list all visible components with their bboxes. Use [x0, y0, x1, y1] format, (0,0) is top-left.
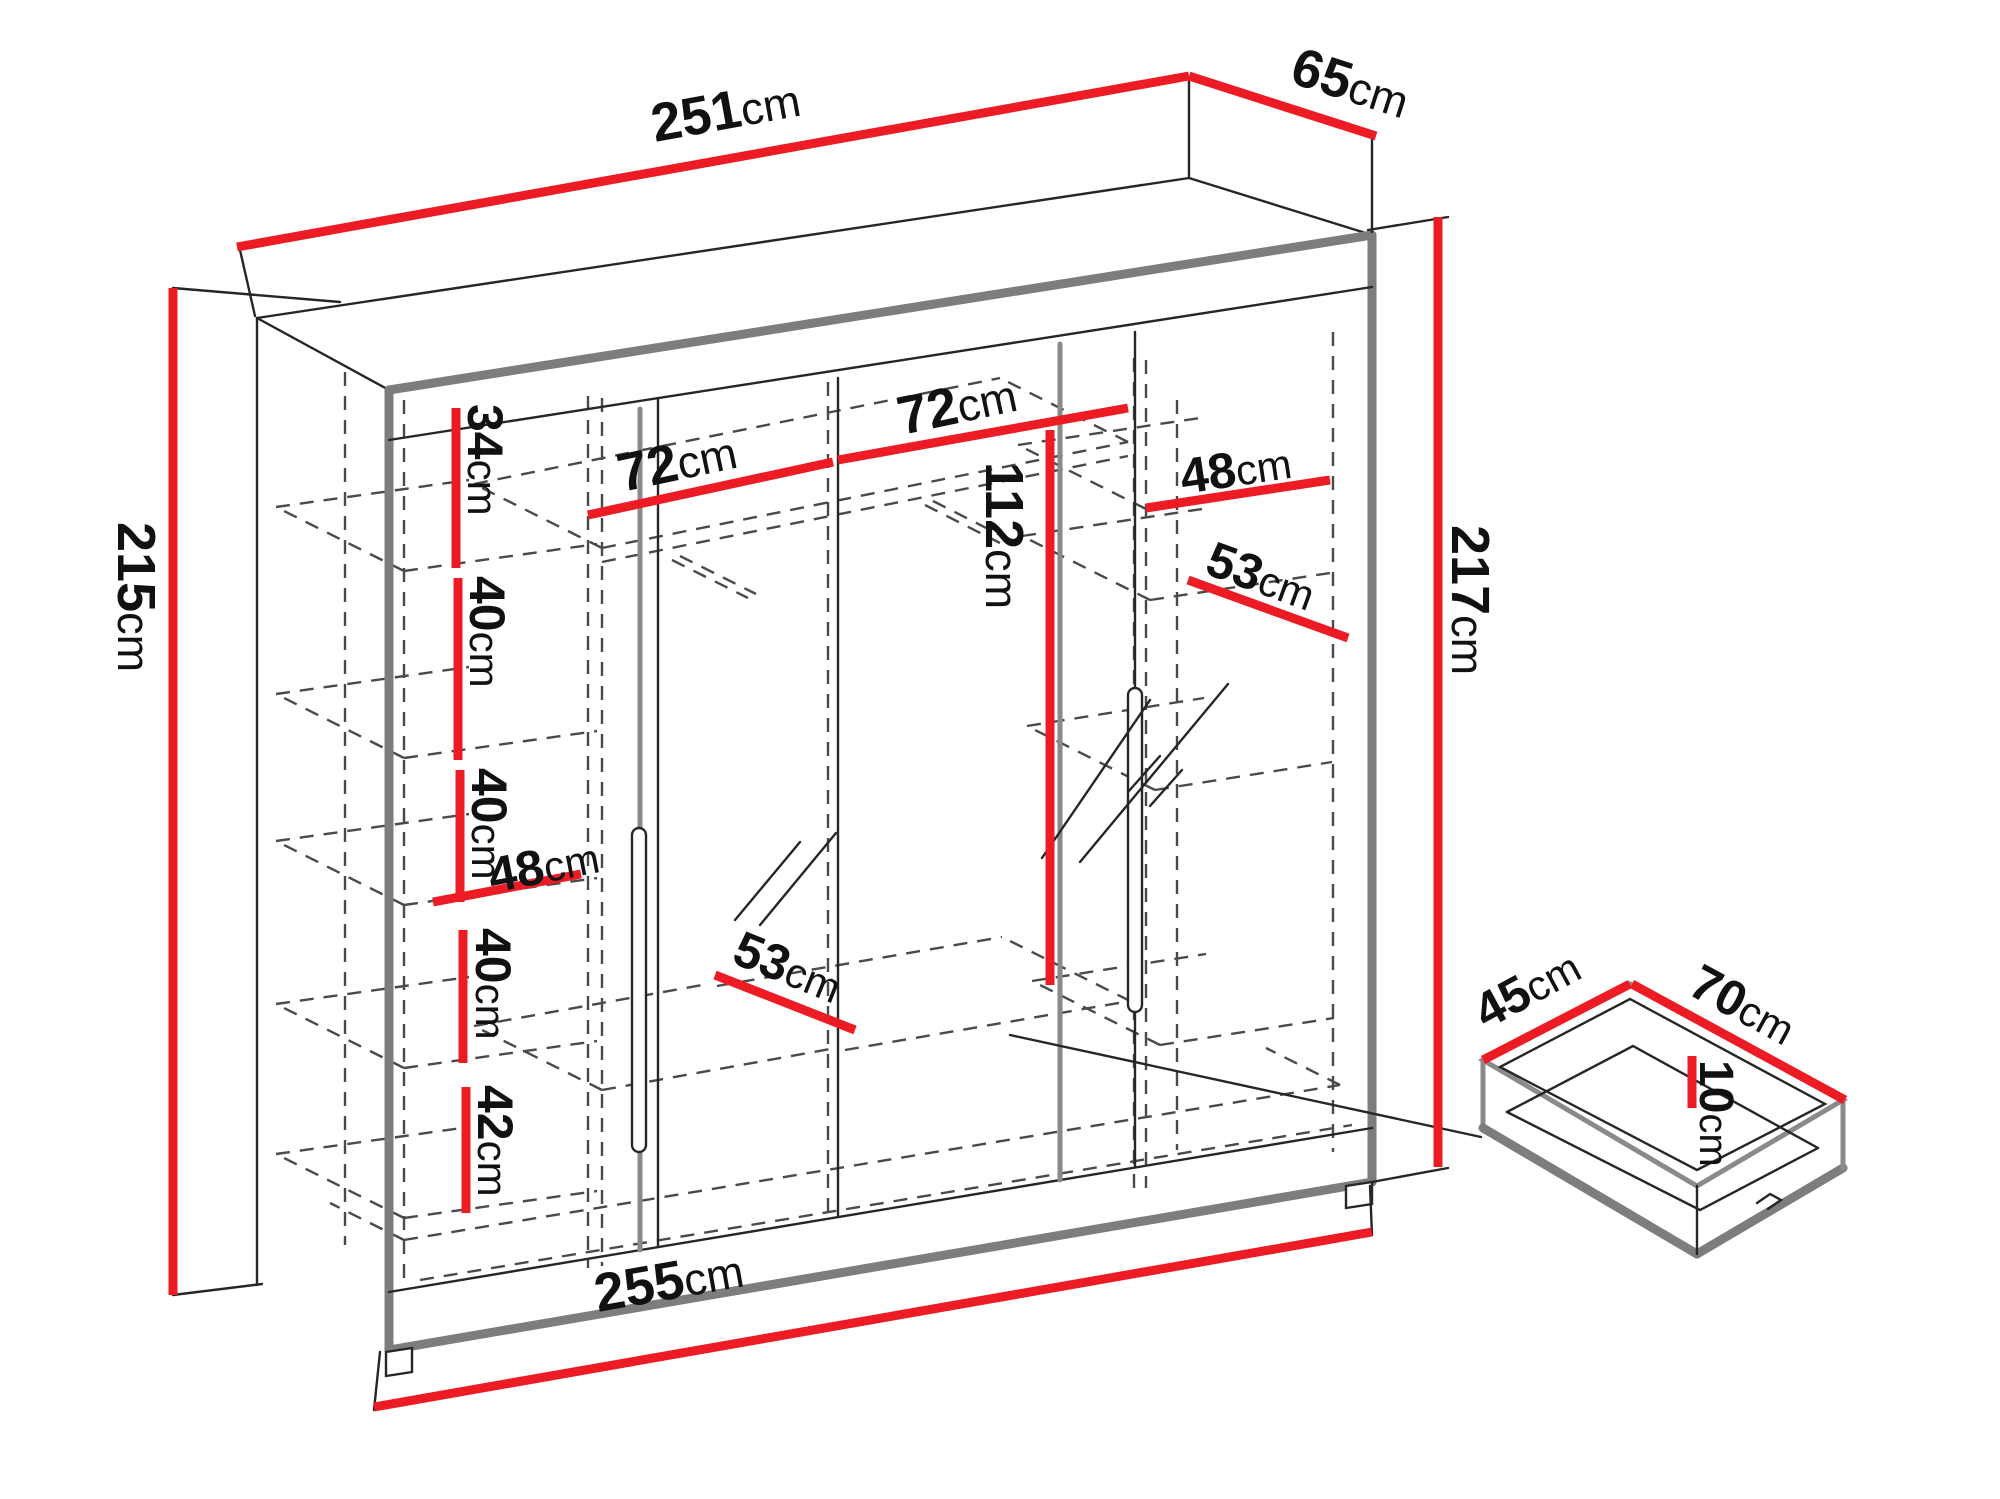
- dimension-label-shelf-gap-1: 34cm: [457, 404, 513, 516]
- hanging-rods-dashed: [672, 501, 1008, 598]
- dimension-label-height-right: 217cm: [1440, 525, 1500, 675]
- dimension-label-drawer-height: 10cm: [1689, 1060, 1742, 1167]
- dimension-lines-red: [173, 76, 1845, 1407]
- dimension-label-height-left: 215cm: [106, 522, 166, 672]
- drawer-leader-line: [1010, 1035, 1481, 1137]
- dimension-label-compartment-left: 72cm: [612, 420, 742, 504]
- dimension-label-hanging-height: 112cm: [974, 462, 1034, 609]
- foot-right: [1346, 1182, 1372, 1208]
- mirror-hatch-marks: [735, 684, 1228, 925]
- dimension-label-shelf-gap-4: 40cm: [465, 928, 521, 1040]
- dimension-label-width-bottom: 255cm: [590, 1239, 748, 1324]
- foot-left: [386, 1348, 412, 1376]
- door-handle-left: [632, 828, 646, 1152]
- dimension-label-shelf-gap-2: 40cm: [459, 576, 515, 688]
- dimension-label-shelf-gap-5: 42cm: [467, 1085, 523, 1197]
- door-handle-right: [1128, 688, 1142, 1012]
- left-panel-top-edge: [257, 318, 389, 390]
- dim-line-width-bottom: [374, 1232, 1372, 1407]
- dimension-label-shelf-width-right: 48cm: [1176, 433, 1295, 505]
- dimension-extension-lines: [173, 80, 1448, 1410]
- front-bottom-edge: [389, 1182, 1372, 1350]
- back-top-edge: [257, 178, 1189, 318]
- cornice-front-edge: [389, 235, 1372, 390]
- wardrobe-dimension-diagram-page: 251cm65cm215cm217cm34cm40cm40cm48cm40cm4…: [0, 0, 2000, 1499]
- wardrobe-dimension-diagram: 251cm65cm215cm217cm34cm40cm40cm48cm40cm4…: [0, 0, 2000, 1499]
- top-face-right-edge: [1189, 178, 1372, 235]
- right-shelves-dashed: [1018, 418, 1334, 1045]
- dimension-label-width-top: 251cm: [646, 68, 804, 154]
- wardrobe-outline: [257, 178, 1372, 1376]
